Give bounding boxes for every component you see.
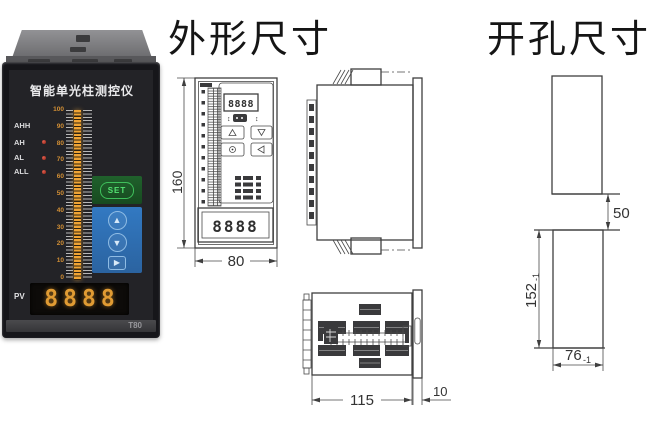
cutout-drawing: 50 152 -1 76 -1 xyxy=(495,58,669,403)
dim-cut-width-tolerance: -1 xyxy=(583,355,591,365)
device-title: 智能单光柱测控仪 xyxy=(2,82,162,99)
top-clamp xyxy=(333,69,413,85)
scale-label: 50 xyxy=(57,190,64,198)
scale-label: 70 xyxy=(57,156,64,164)
updown-icon: ↕ xyxy=(227,116,231,123)
scale-label: 80 xyxy=(57,140,64,148)
page: 外形尺寸 开孔尺寸 智能单光柱测控仪 AHH AH AL ALL 100 90 … xyxy=(0,0,669,422)
scale-label: 40 xyxy=(57,207,64,215)
bottom-bezel xyxy=(413,290,422,378)
set-button: SET xyxy=(92,176,142,204)
dim-height-label: 160 xyxy=(169,170,185,194)
scale-label: 20 xyxy=(57,240,64,248)
left-triangle-icon xyxy=(258,146,264,153)
drawn-upper-display-value: 8888 xyxy=(228,99,254,110)
alarm-label-all: ALL xyxy=(14,167,29,176)
housing-vent xyxy=(70,47,86,52)
updown-icon: ↕ xyxy=(255,116,259,123)
lens-icon xyxy=(233,114,247,122)
pv-led-display: 8888 xyxy=(30,283,129,315)
cutout-dimensions-title: 开孔尺寸 xyxy=(487,8,651,63)
scale-label: 10 xyxy=(57,257,64,265)
drawn-indicators xyxy=(235,176,261,200)
down-triangle-icon xyxy=(258,130,265,136)
scale-label: 0 xyxy=(60,274,64,282)
dim-bezel-label: 10 xyxy=(433,384,447,399)
instrument-housing xyxy=(12,30,152,58)
scale-label: 90 xyxy=(57,123,64,131)
drawn-shift-button xyxy=(251,143,272,156)
scale-ticks-right xyxy=(83,110,92,280)
dim-gap-label: 50 xyxy=(613,205,630,222)
front-view-drawing: 160 8888 ↕ ↕ xyxy=(172,64,288,272)
scale-label: 30 xyxy=(57,224,64,232)
upper-cutout xyxy=(552,76,602,194)
shift-arrow-button: ▶ xyxy=(108,256,126,270)
side-bezel xyxy=(413,78,422,248)
side-view-drawing xyxy=(293,54,473,264)
scale-label: 100 xyxy=(53,106,64,114)
down-arrow-button: ▼ xyxy=(108,233,127,252)
alarm-label-al: AL xyxy=(14,153,24,162)
dim-width-label: 80 xyxy=(228,253,245,270)
keypad: ▲ ▼ ▶ xyxy=(92,207,142,273)
instrument-photo: 智能单光柱测控仪 AHH AH AL ALL 100 90 80 70 60 5… xyxy=(2,30,162,345)
set-button-label: SET xyxy=(100,182,134,199)
up-triangle-icon xyxy=(229,130,236,136)
bargraph-scale: 100 90 80 70 60 50 40 30 20 10 0 xyxy=(42,106,64,282)
terminal-blocks xyxy=(309,104,314,219)
model-label: T80 xyxy=(6,320,156,332)
alarm-label-ahh: AHH xyxy=(14,121,30,130)
housing-vent xyxy=(76,35,90,42)
lower-cutout xyxy=(553,230,603,348)
logo-block xyxy=(200,83,212,87)
alarm-label-ah: AH xyxy=(14,138,25,147)
drawn-down-button xyxy=(251,126,272,139)
drawn-lower-display-value: 8888 xyxy=(212,217,259,236)
pv-label: PV xyxy=(14,292,25,301)
dim-cut-height-tolerance: -1 xyxy=(531,273,541,281)
up-arrow-button: ▲ xyxy=(108,211,127,230)
dim-cut-height-label: 152 xyxy=(523,283,540,308)
dim-cut-width-label: 76 xyxy=(565,347,582,364)
drawn-bargraph xyxy=(202,88,222,206)
scale-label: 60 xyxy=(57,173,64,181)
bottom-view-drawing: 115 10 xyxy=(293,262,475,420)
scale-ticks-left xyxy=(66,110,73,280)
dim-depth-label: 115 xyxy=(350,392,374,409)
led-bargraph xyxy=(74,110,81,280)
drawn-up-button xyxy=(221,126,244,139)
